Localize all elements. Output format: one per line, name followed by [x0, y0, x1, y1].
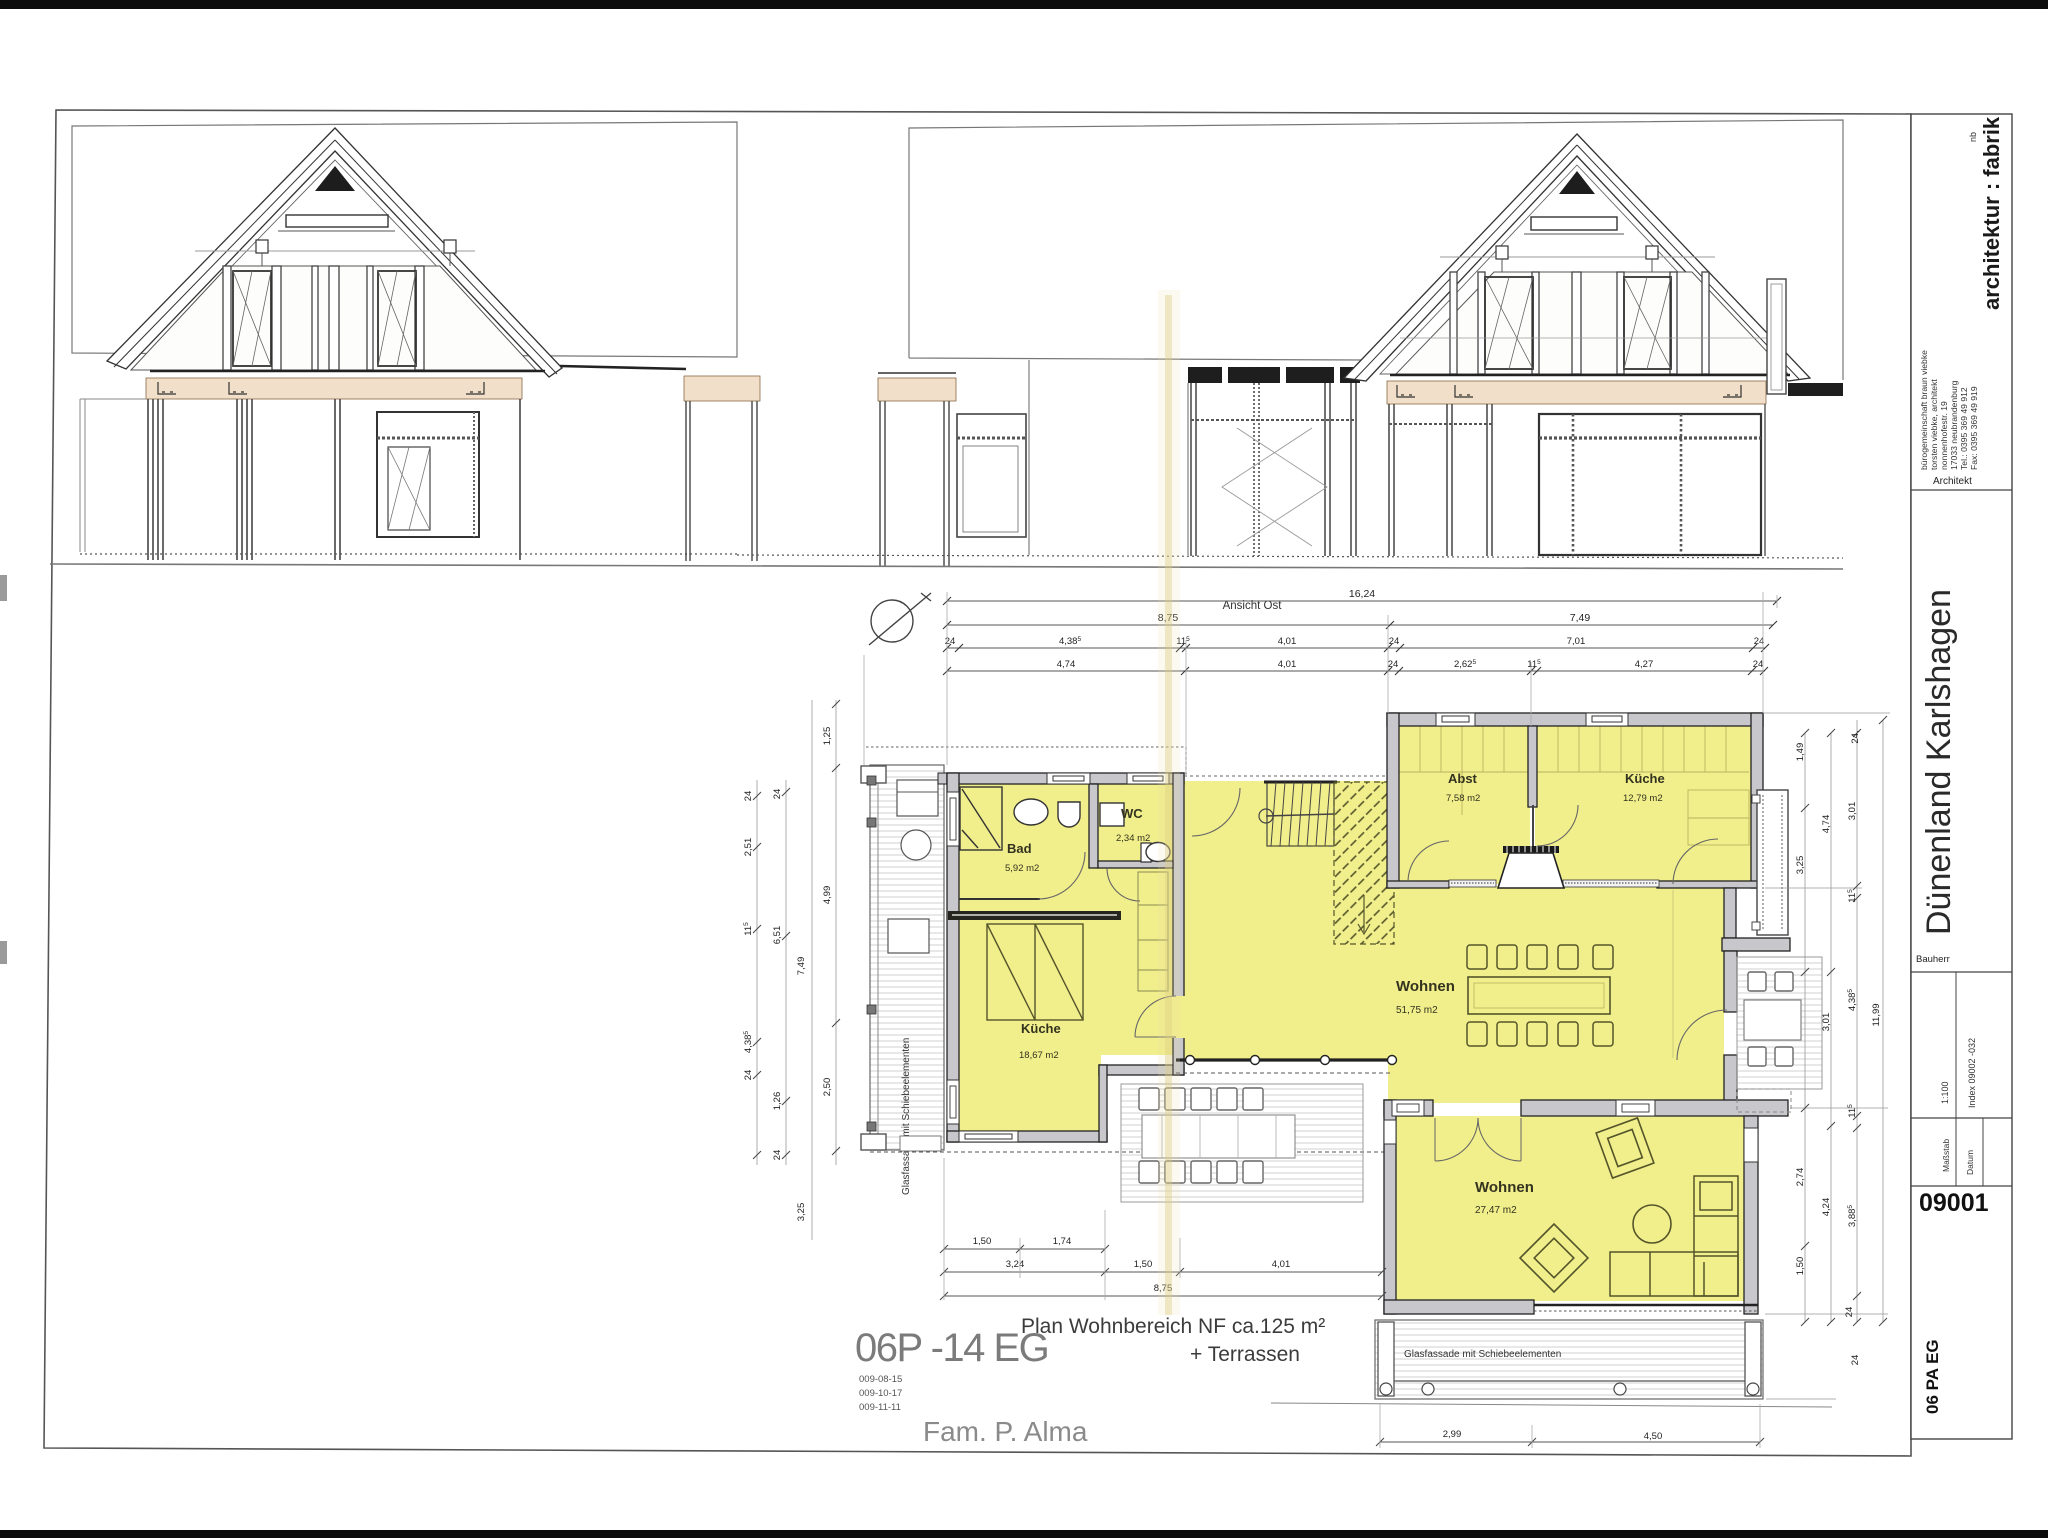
svg-text:24: 24	[945, 636, 956, 647]
svg-text:4,99: 4,99	[822, 886, 833, 905]
svg-text:24: 24	[1844, 1307, 1855, 1318]
svg-text:nb: nb	[1968, 132, 1978, 142]
svg-text:1,25: 1,25	[822, 727, 833, 746]
svg-text:18,67 m2: 18,67 m2	[1019, 1050, 1059, 1061]
svg-text:WC: WC	[1121, 806, 1143, 821]
svg-text:24,: 24,	[1850, 730, 1861, 743]
svg-text:4,24: 4,24	[1821, 1198, 1832, 1217]
svg-text:1,74: 1,74	[1053, 1236, 1072, 1247]
svg-text:7,49: 7,49	[796, 957, 807, 976]
svg-text:009-11-11: 009-11-11	[859, 1402, 901, 1413]
svg-text:Bauherr: Bauherr	[1916, 954, 1950, 965]
svg-text:Abst: Abst	[1448, 771, 1478, 786]
svg-text:Datum: Datum	[1965, 1150, 1975, 1175]
svg-text:2,50: 2,50	[822, 1078, 833, 1097]
svg-text:1,26: 1,26	[772, 1092, 783, 1111]
svg-text:24: 24	[1389, 636, 1400, 647]
svg-text:4,01: 4,01	[1278, 636, 1297, 647]
svg-text:06P -14 EG: 06P -14 EG	[855, 1326, 1048, 1370]
svg-text:51,75 m2: 51,75 m2	[1396, 1005, 1438, 1016]
svg-text:Küche: Küche	[1021, 1021, 1061, 1036]
svg-text:Index 09002 -032: Index 09002 -032	[1967, 1038, 1977, 1108]
svg-text:Fam. P. Alma: Fam. P. Alma	[923, 1416, 1088, 1447]
svg-text:7,58 m2: 7,58 m2	[1446, 793, 1480, 804]
svg-text:3,25: 3,25	[796, 1203, 807, 1222]
svg-text:3,24: 3,24	[1006, 1259, 1025, 1270]
svg-text:7,01: 7,01	[1567, 636, 1586, 647]
svg-text:1:100: 1:100	[1940, 1081, 1950, 1104]
svg-text:12,79 m2: 12,79 m2	[1623, 793, 1663, 804]
svg-text:1,49: 1,49	[1795, 743, 1806, 762]
svg-text:17033 neubrandenburg: 17033 neubrandenburg	[1949, 380, 1959, 470]
svg-text:Dünenland Karlshagen: Dünenland Karlshagen	[1920, 589, 1958, 935]
svg-text:Glasfassade mit Schiebeelement: Glasfassade mit Schiebeelementen	[1404, 1349, 1561, 1360]
svg-text:6,51: 6,51	[772, 926, 783, 945]
svg-text:009-08-15: 009-08-15	[859, 1374, 902, 1385]
svg-text:1,50: 1,50	[973, 1236, 992, 1247]
svg-text:27,47 m2: 27,47 m2	[1475, 1205, 1517, 1216]
svg-text:Tel.: 0395 369 49 912: Tel.: 0395 369 49 912	[1959, 387, 1969, 470]
svg-text:24: 24	[1388, 659, 1399, 670]
svg-text:2,74: 2,74	[1795, 1168, 1806, 1187]
svg-text:Wohnen: Wohnen	[1475, 1179, 1534, 1196]
svg-text:Architekt: Architekt	[1933, 476, 1972, 487]
svg-text:bürogemeinschaft braun viebke: bürogemeinschaft braun viebke	[1919, 350, 1929, 470]
svg-text:torsten viebke, architekt: torsten viebke, architekt	[1929, 379, 1939, 470]
svg-text:4,74: 4,74	[1821, 815, 1832, 834]
svg-text:Küche: Küche	[1625, 771, 1665, 786]
svg-text:nonnenhofestr. 19: nonnenhofestr. 19	[1939, 401, 1949, 470]
svg-text:1,50: 1,50	[1134, 1259, 1153, 1270]
svg-text:Wohnen: Wohnen	[1396, 978, 1455, 995]
svg-text:Ansicht Ost: Ansicht Ost	[1223, 600, 1283, 612]
svg-text:24: 24	[743, 791, 754, 802]
svg-text:Maßstab: Maßstab	[1941, 1139, 1951, 1172]
svg-text:24: 24	[743, 1070, 754, 1081]
svg-text:3,01: 3,01	[1821, 1013, 1832, 1032]
svg-text:+ Terrassen: + Terrassen	[1190, 1343, 1300, 1366]
svg-text:7,49: 7,49	[1570, 612, 1591, 624]
svg-text:5,92 m2: 5,92 m2	[1005, 863, 1039, 874]
svg-text:Plan Wohnbereich NF ca.125 m²: Plan Wohnbereich NF ca.125 m²	[1021, 1315, 1325, 1338]
svg-text:24: 24	[772, 1150, 783, 1161]
svg-text:4,27: 4,27	[1635, 659, 1654, 670]
svg-text:24: 24	[1850, 1355, 1861, 1366]
svg-text:1,50: 1,50	[1795, 1257, 1806, 1276]
svg-text:2,99: 2,99	[1443, 1429, 1462, 1440]
svg-text:16,24: 16,24	[1349, 588, 1375, 600]
svg-text:06 PA EG: 06 PA EG	[1923, 1339, 1942, 1414]
svg-text:4,01: 4,01	[1278, 659, 1297, 670]
svg-text:009-10-17: 009-10-17	[859, 1388, 902, 1399]
svg-text:11,99: 11,99	[1871, 1003, 1882, 1026]
svg-text:Fax: 0395 369 49 919: Fax: 0395 369 49 919	[1969, 386, 1979, 470]
svg-text:4,50: 4,50	[1644, 1431, 1663, 1442]
svg-text:09001: 09001	[1919, 1189, 1989, 1217]
svg-text:4,74: 4,74	[1057, 659, 1076, 670]
svg-text:3,25: 3,25	[1795, 856, 1806, 875]
svg-text:2,51: 2,51	[743, 838, 754, 857]
svg-text:2,34 m2: 2,34 m2	[1116, 833, 1150, 844]
svg-text:Glasfassade mit Schiebeelement: Glasfassade mit Schiebeelementen	[901, 1038, 912, 1195]
svg-text:24: 24	[1753, 659, 1764, 670]
svg-text:4,01: 4,01	[1272, 1259, 1291, 1270]
svg-text:architektur : fabrik: architektur : fabrik	[1979, 116, 2004, 310]
svg-text:24: 24	[772, 789, 783, 800]
svg-text:3,01: 3,01	[1847, 802, 1858, 821]
svg-text:Bad: Bad	[1007, 841, 1032, 856]
